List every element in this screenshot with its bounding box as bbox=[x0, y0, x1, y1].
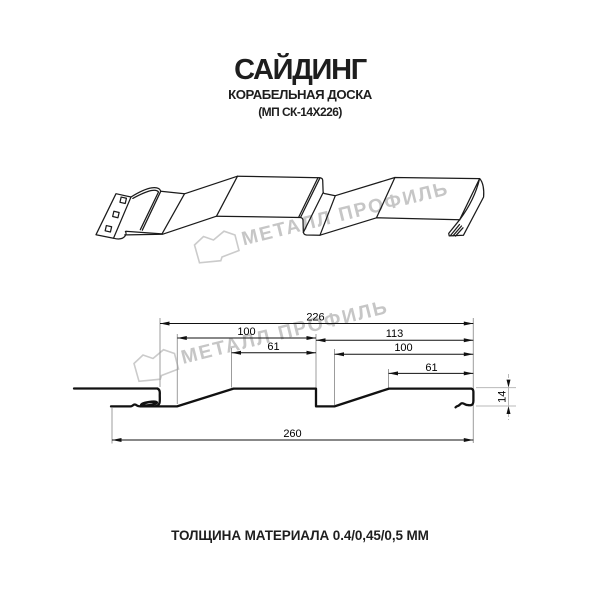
svg-text:14: 14 bbox=[496, 391, 508, 403]
svg-text:61: 61 bbox=[425, 362, 437, 374]
svg-text:113: 113 bbox=[386, 328, 404, 340]
svg-text:61: 61 bbox=[267, 341, 279, 353]
svg-text:100: 100 bbox=[237, 326, 255, 338]
svg-text:МЕТАЛЛ ПРОФИЛЬ: МЕТАЛЛ ПРОФИЛЬ bbox=[179, 296, 389, 368]
svg-text:100: 100 bbox=[394, 342, 412, 354]
svg-text:МЕТАЛЛ ПРОФИЛЬ: МЕТАЛЛ ПРОФИЛЬ bbox=[239, 178, 449, 250]
svg-text:260: 260 bbox=[283, 428, 301, 440]
svg-text:226: 226 bbox=[306, 311, 324, 323]
